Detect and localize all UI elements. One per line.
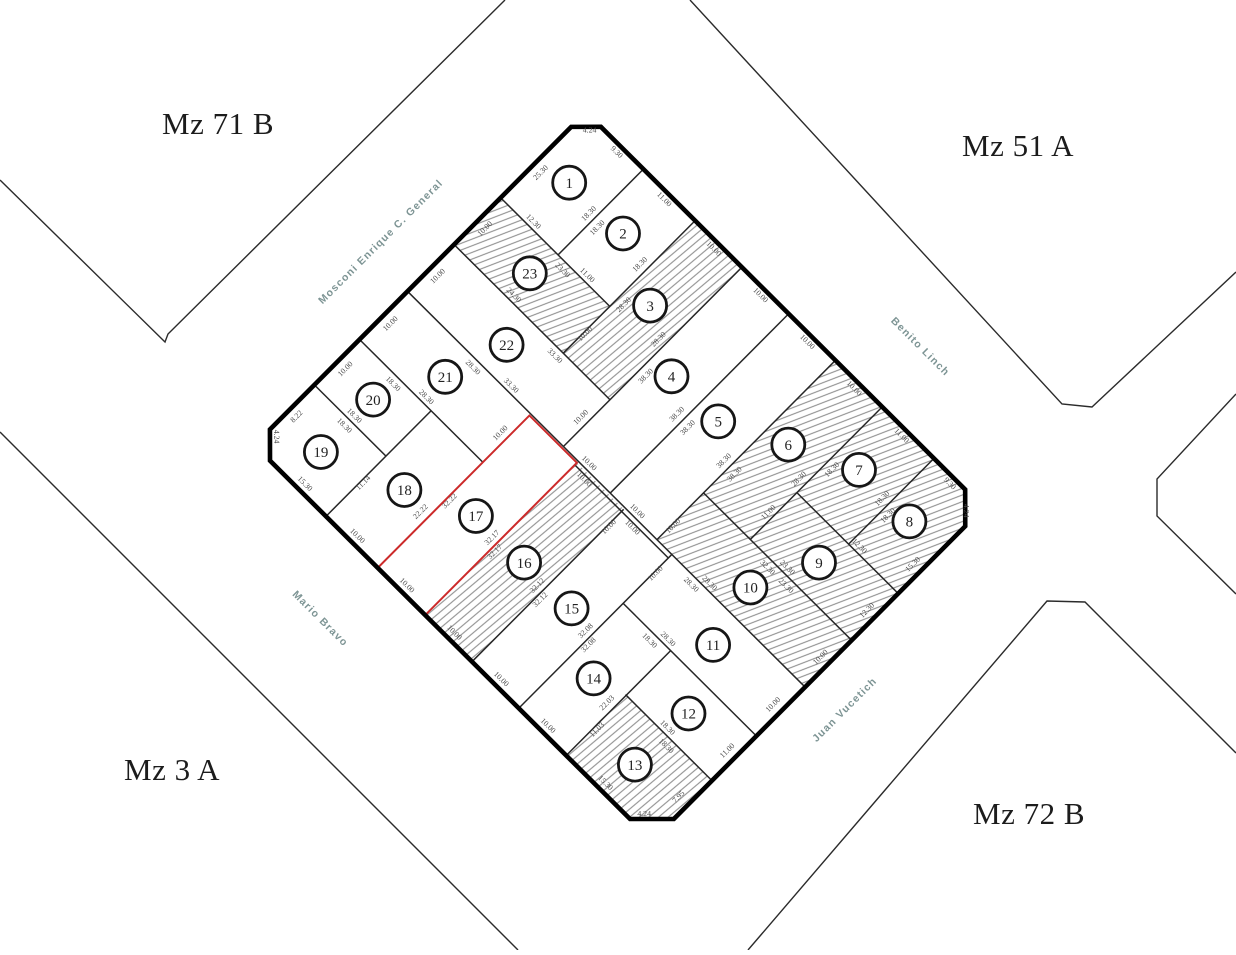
svg-text:14: 14 — [586, 672, 602, 688]
svg-text:Mz 71 B: Mz 71 B — [162, 106, 274, 141]
svg-text:19: 19 — [313, 445, 328, 461]
svg-text:4: 4 — [668, 370, 676, 386]
svg-text:10: 10 — [743, 581, 758, 597]
svg-text:16: 16 — [517, 556, 533, 572]
svg-text:12: 12 — [681, 707, 696, 723]
svg-text:Mz 3 A: Mz 3 A — [124, 752, 220, 787]
svg-text:3: 3 — [646, 299, 654, 315]
svg-text:4.24: 4.24 — [637, 809, 651, 818]
svg-text:22: 22 — [499, 338, 514, 354]
svg-text:15: 15 — [564, 602, 579, 618]
svg-text:1: 1 — [565, 176, 573, 192]
svg-text:21: 21 — [438, 370, 453, 386]
svg-text:18: 18 — [397, 483, 412, 499]
svg-text:4.24: 4.24 — [272, 430, 281, 444]
svg-text:13: 13 — [627, 758, 642, 774]
svg-text:8: 8 — [906, 515, 914, 531]
svg-text:5: 5 — [714, 415, 722, 431]
svg-text:4.24: 4.24 — [962, 504, 971, 518]
svg-text:4.24: 4.24 — [583, 125, 597, 134]
svg-text:7: 7 — [855, 463, 863, 479]
svg-text:11: 11 — [706, 638, 720, 654]
svg-text:20: 20 — [366, 393, 381, 409]
svg-text:2: 2 — [619, 227, 627, 243]
svg-text:17: 17 — [468, 509, 484, 525]
svg-text:Mz 72 B: Mz 72 B — [973, 796, 1085, 831]
svg-text:6: 6 — [785, 438, 793, 454]
svg-text:9: 9 — [815, 556, 823, 572]
svg-text:Mz 51 A: Mz 51 A — [962, 128, 1074, 163]
svg-text:23: 23 — [522, 267, 537, 283]
